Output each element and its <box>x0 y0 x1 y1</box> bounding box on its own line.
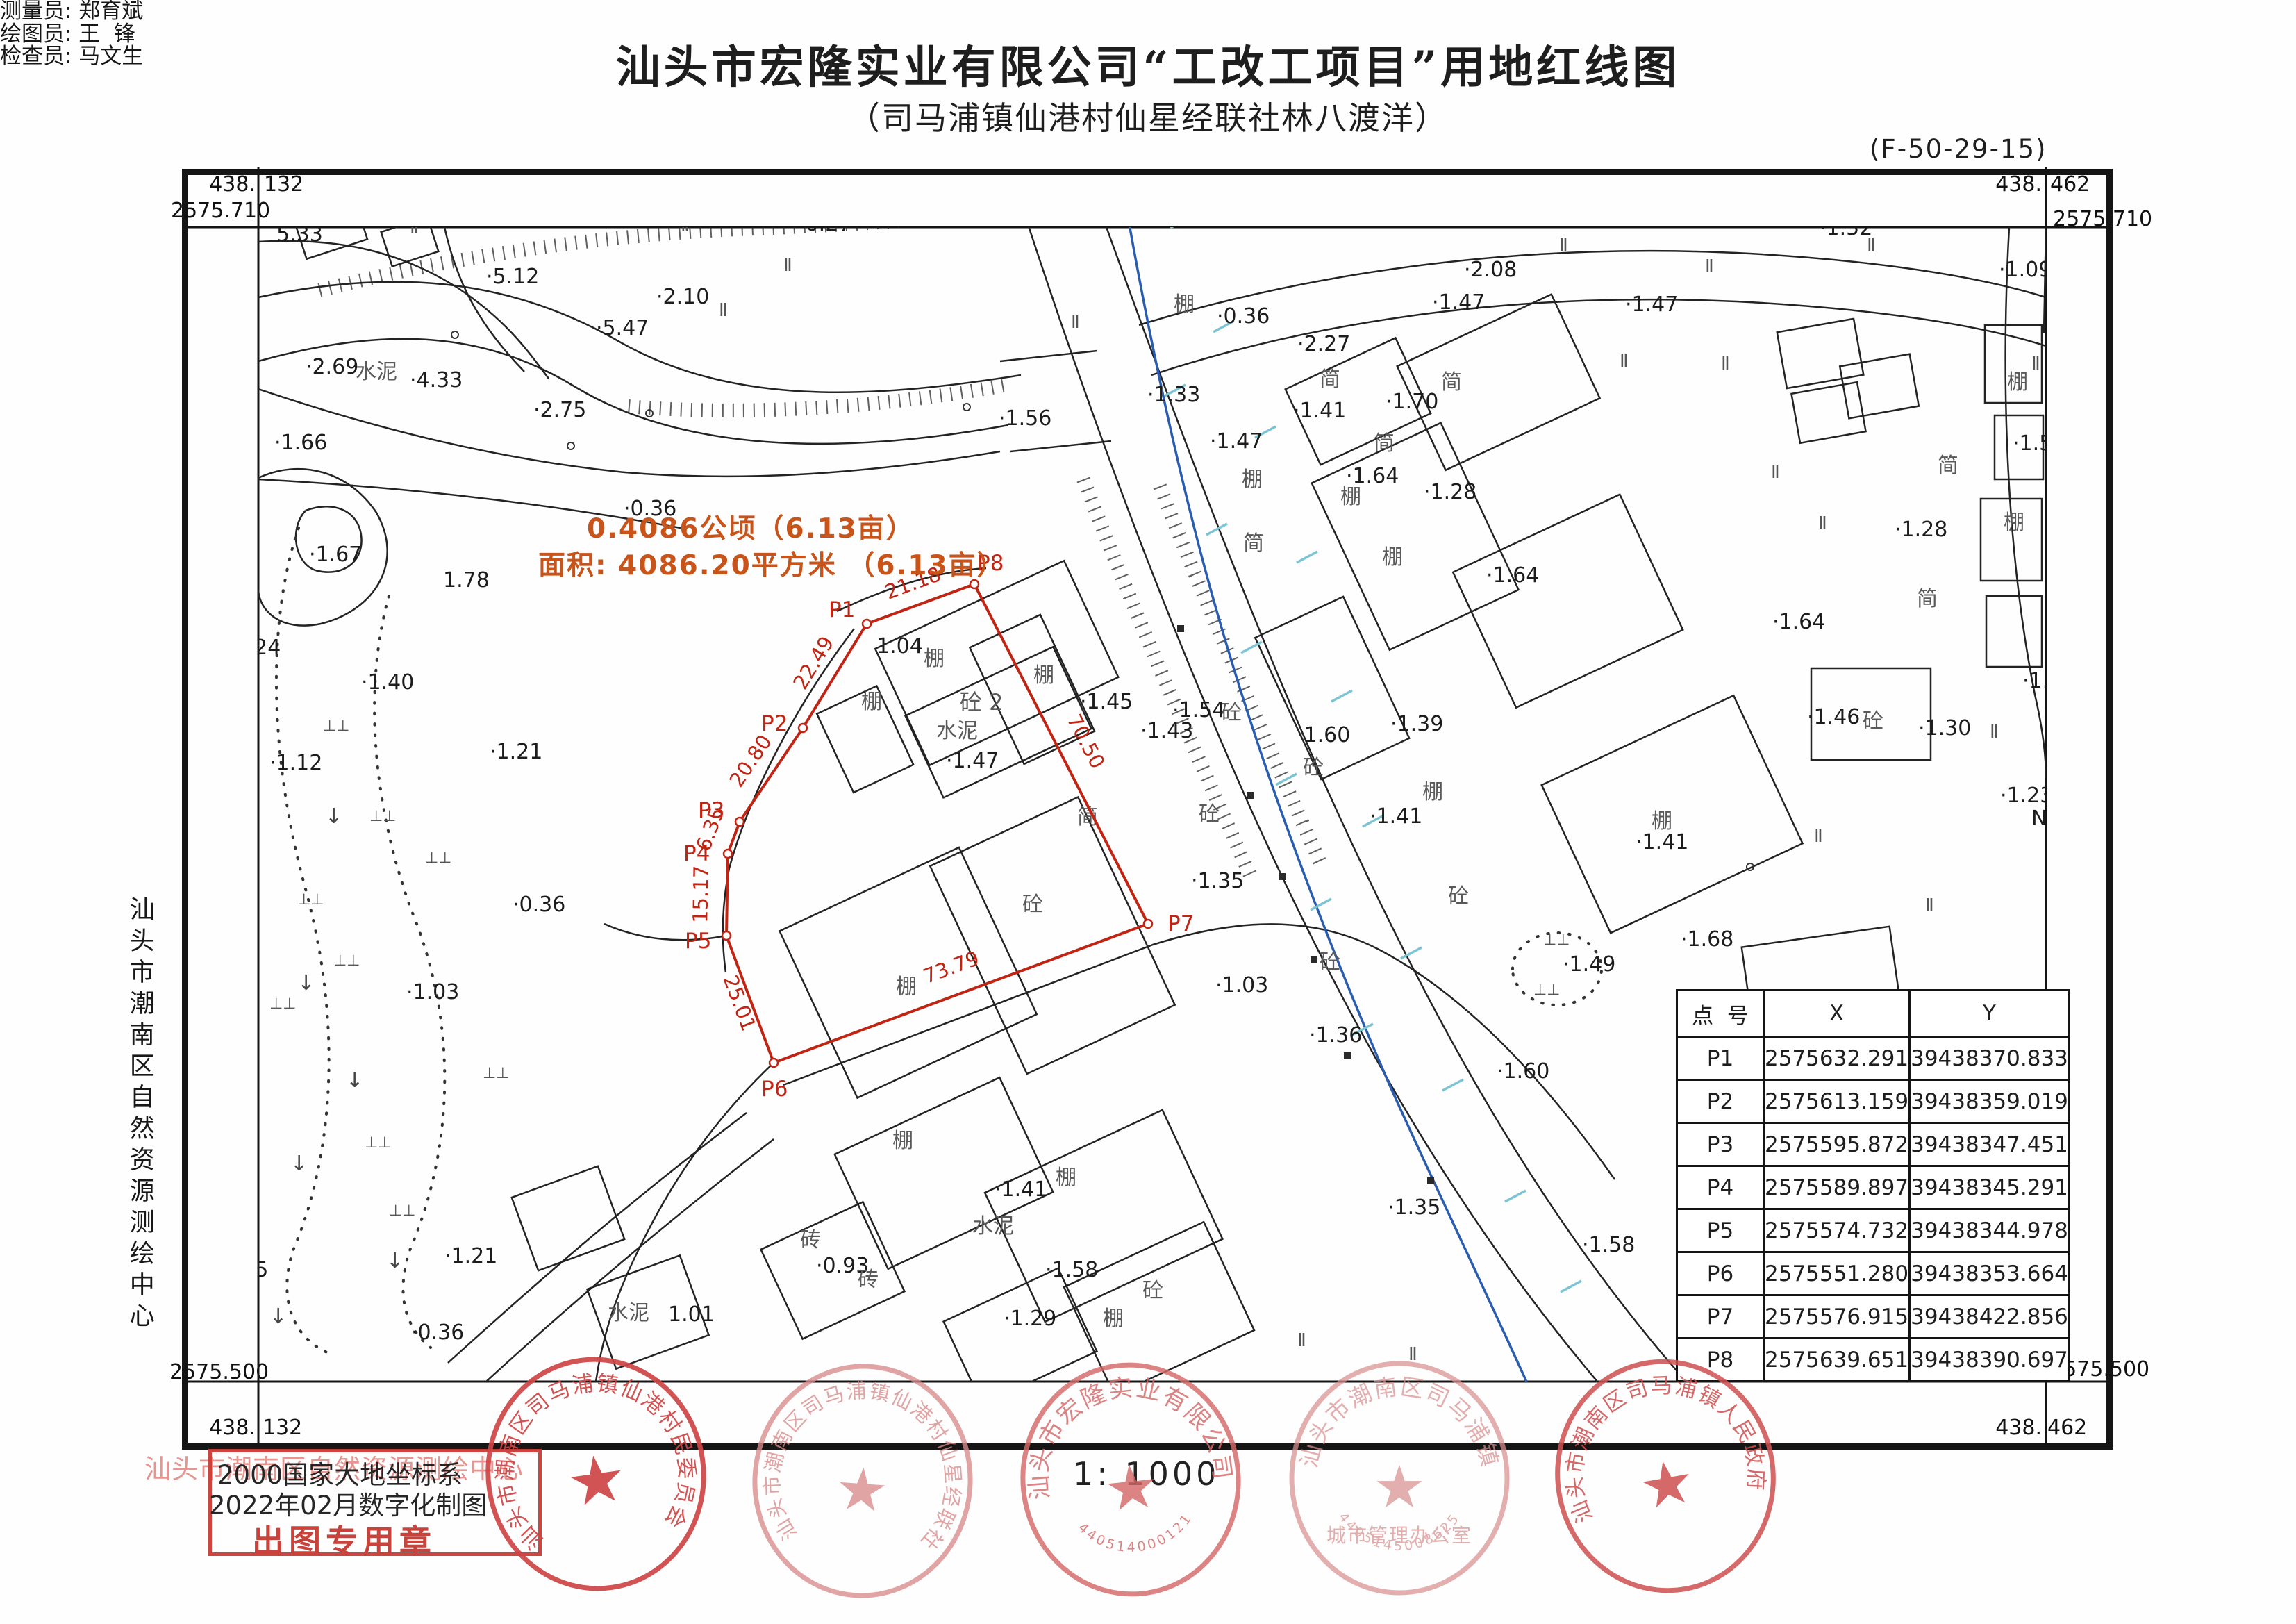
marsh-mark: ⊥⊥ <box>323 718 349 735</box>
flow-arrow: ↓ <box>290 1152 308 1176</box>
table-row: P72575576.91539438422.856 <box>1677 1295 2070 1339</box>
table-header: Y <box>1910 991 2070 1037</box>
marsh-mark: ⊥⊥ <box>425 850 451 867</box>
paddy-mark: Ⅱ <box>1705 256 1714 277</box>
table-cell: P6 <box>1677 1252 1764 1295</box>
map-label: ·1.09 <box>1999 258 2052 282</box>
flow-arrow: ↓ <box>386 1249 404 1273</box>
marsh-mark: ⊥⊥ <box>333 952 360 970</box>
official-stamp: 汕头市潮南区司马浦镇仙港村民委员会★ <box>457 1335 735 1616</box>
map-label: ·0.27 <box>799 212 851 236</box>
map-label: 1.78 <box>443 568 490 593</box>
stamp-star-icon: ★ <box>1101 1449 1163 1526</box>
map-label: ·1.16 <box>2022 669 2075 693</box>
water-dash <box>1331 690 1352 702</box>
map-label: 棚 <box>1174 292 1195 317</box>
water-dash <box>1442 1079 1463 1091</box>
table-row: P32575595.87239438347.451 <box>1677 1123 2070 1166</box>
map-label: 简 <box>1917 587 1938 611</box>
table-row: P52575574.73239438344.978 <box>1677 1209 2070 1252</box>
marsh-mark: ⊥⊥ <box>297 891 324 909</box>
parcel-vertex-label: P1 <box>829 597 855 622</box>
map-label: 棚 <box>2007 370 2028 395</box>
parcel-vertex-label: P4 <box>683 841 710 866</box>
water-dash <box>1297 552 1317 563</box>
area-label-line1: 0.4086公顷（6.13亩） <box>587 515 915 544</box>
parcel-edge-length: 25.01 <box>719 972 761 1034</box>
table-cell: 39438353.664 <box>1910 1252 2070 1295</box>
parcel-vertex-label: P7 <box>1167 911 1194 936</box>
map-label: 棚 <box>1056 1166 1076 1190</box>
water-dash <box>1561 1281 1581 1292</box>
map-label: 砼 <box>1448 884 1469 909</box>
marsh-mark: ⊥⊥ <box>365 1134 391 1152</box>
paddy-mark: Ⅱ <box>1559 235 1568 256</box>
marsh-mark: ⊥⊥ <box>1543 931 1570 949</box>
map-label: ·1.64 <box>1486 563 1539 588</box>
table-cell: 39438422.856 <box>1910 1295 2070 1339</box>
marsh-mark: ⊥⊥ <box>269 995 296 1013</box>
table-cell: P3 <box>1677 1123 1764 1166</box>
boundary-post <box>1177 625 1184 632</box>
map-label: 棚 <box>924 647 945 671</box>
table-cell: 39438359.019 <box>1910 1080 2070 1123</box>
map-label: 水泥 <box>356 360 397 384</box>
map-label: 棚 <box>1382 545 1403 570</box>
stamp-star-icon: ★ <box>563 1439 632 1523</box>
parcel-vertex <box>724 850 732 858</box>
map-label: ·1.58 <box>1045 1258 1098 1282</box>
paddy-mark: Ⅱ <box>1925 895 1934 916</box>
parcel-vertex <box>863 620 871 628</box>
map-label: ·1.58 <box>1582 1233 1635 1257</box>
parcel-polygon: 21.1822.4920.806.3515.1725.0173.7970.50P… <box>683 551 1194 1102</box>
table-cell: 2575595.872 <box>1764 1123 1910 1166</box>
parcel-vertex <box>1144 920 1152 928</box>
paddy-mark: Ⅱ <box>2031 354 2040 374</box>
map-label: ·1.36 <box>1309 1023 1362 1047</box>
map-label: 砼 <box>1142 1279 1163 1303</box>
map-label: 简 <box>1938 454 1958 478</box>
map-label: 砼 <box>1199 802 1220 827</box>
map-label: ·1.52 <box>2013 431 2065 456</box>
map-label: 水泥 <box>972 1214 1014 1238</box>
table-cell: P5 <box>1677 1209 1764 1252</box>
map-label: ·1.41 <box>1293 399 1346 423</box>
map-label: ·1.23 <box>2000 784 2053 808</box>
table-cell: P1 <box>1677 1037 1764 1080</box>
map-label: ·1.56 <box>999 406 1051 431</box>
stamp-star-icon: ★ <box>1373 1453 1426 1522</box>
map-sheet: 汕头市宏隆实业有限公司“工改工项目”用地红线图 （司马浦镇仙港村仙星经联社林八渡… <box>0 0 2296 1624</box>
table-cell: 2575576.915 <box>1764 1295 1910 1339</box>
table-cell: P4 <box>1677 1166 1764 1209</box>
map-label: 1.01 <box>668 1302 715 1327</box>
seal-purpose: 出图专用章 <box>252 1516 436 1562</box>
paddy-mark: Ⅱ <box>681 215 690 235</box>
map-label: ·1.45 <box>1080 690 1133 714</box>
map-label: 砼 <box>1863 709 1883 734</box>
map-label: 砼 <box>1022 893 1043 917</box>
map-label: ·1.60 <box>1497 1059 1549 1084</box>
map-label: 简 <box>1374 431 1395 456</box>
map-label: 砖 <box>800 1228 821 1252</box>
map-label: ·1.03 <box>1215 973 1268 997</box>
area-label-line2: 面积: 4086.20平方米 （6.13亩） <box>538 552 1006 581</box>
paddy-mark: Ⅱ <box>410 217 419 238</box>
map-label: ·1.43 <box>1140 719 1193 743</box>
map-label: ·1.12 <box>269 751 322 775</box>
map-label: ·1.29 <box>1004 1307 1056 1331</box>
map-label: 1.04 <box>876 634 923 658</box>
map-label: ·1.52 <box>1820 216 1872 240</box>
map-label: 水泥 <box>945 176 981 224</box>
table-cell: 2575632.291 <box>1764 1037 1910 1080</box>
table-cell: 2575574.732 <box>1764 1209 1910 1252</box>
map-label: ·1.28 <box>1895 517 1947 542</box>
paddy-mark: Ⅱ <box>1818 513 1827 534</box>
coordinate-table: 点 号XYP12575632.29139438370.833P22575613.… <box>1676 989 2070 1382</box>
map-label: 棚 <box>1652 809 1672 834</box>
map-label: 棚 <box>2004 511 2024 535</box>
marsh-mark: ⊥⊥ <box>369 808 396 825</box>
map-label: ·0.36 <box>513 893 565 917</box>
parcel-vertex-label: P5 <box>685 929 711 954</box>
paddy-mark: Ⅱ <box>1771 462 1780 483</box>
water-dash <box>1505 1191 1526 1202</box>
map-label: ·2.08 <box>1464 258 1517 282</box>
point-symbol <box>963 404 970 411</box>
map-label: ·1.64 <box>1772 610 1825 634</box>
paddy-mark: Ⅱ <box>361 192 370 213</box>
official-stamp: 汕头市宏隆实业有限公司★440514000121 <box>992 1341 1270 1621</box>
table-cell: 39438370.833 <box>1910 1037 2070 1080</box>
map-label: 砼 <box>1303 756 1324 780</box>
marsh-mark: ⊥⊥ <box>389 1202 415 1220</box>
paddy-mark: Ⅱ <box>719 300 728 321</box>
map-label: 5.33 <box>276 222 323 247</box>
table-cell: P7 <box>1677 1295 1764 1339</box>
map-label: 简 <box>1441 370 1462 395</box>
table-cell: 39438345.291 <box>1910 1166 2070 1209</box>
map-label: ·1.47 <box>1432 290 1485 315</box>
map-label: ·5.12 <box>486 265 539 289</box>
map-label: ·1.60 <box>1297 723 1350 747</box>
map-label: ·1.35 <box>1191 869 1244 893</box>
marsh-mark: ⊥⊥ <box>483 1065 509 1082</box>
boundary-post <box>1311 956 1317 963</box>
table-header: X <box>1764 991 1910 1037</box>
map-label: ·2.69 <box>306 355 358 379</box>
map-label: 棚 <box>1103 1307 1124 1331</box>
map-label: ·1.41 <box>995 1177 1047 1202</box>
map-label: ·1.39 <box>1390 712 1443 736</box>
map-label: 棚 <box>1340 485 1361 509</box>
table-cell: 2575613.159 <box>1764 1080 1910 1123</box>
parcel-edge-length: 20.80 <box>724 730 776 791</box>
flow-arrow: ↓ <box>346 1068 363 1093</box>
flow-arrow: ↓ <box>269 1304 287 1329</box>
parcel-edge-length: 73.79 <box>920 946 983 988</box>
map-label: ·1.47 <box>1210 429 1263 454</box>
map-label: ·2.75 <box>533 398 586 422</box>
parcel-vertex-label: P6 <box>761 1077 788 1102</box>
map-label: ·1.03 <box>406 980 459 1004</box>
map-label: 棚 <box>892 1129 913 1153</box>
map-label: ·2.27 <box>1297 332 1350 356</box>
marsh-mark: ⊥⊥ <box>1533 981 1560 999</box>
table-row: P62575551.28039438353.664 <box>1677 1252 2070 1295</box>
boundary-post <box>1279 873 1286 880</box>
official-stamp: 汕头市潮南区司马浦镇仙港村仙星经联社★ <box>724 1342 1001 1623</box>
map-label: ·1.24 <box>228 636 281 660</box>
map-label: ·2.10 <box>656 285 709 309</box>
parcel-vertex <box>735 818 744 826</box>
boundary-post <box>1247 792 1254 799</box>
map-label: 简 <box>1243 531 1264 556</box>
parcel-edge-length: 15.17 <box>688 865 713 924</box>
table-cell: P2 <box>1677 1080 1764 1123</box>
flow-arrow: ↓ <box>325 804 342 829</box>
map-label: 砼 <box>1221 701 1242 725</box>
map-label: 砖 <box>858 1268 879 1292</box>
paddy-mark: Ⅱ <box>1990 722 1999 743</box>
table-cell: 2575589.897 <box>1764 1166 1910 1209</box>
map-label: ·1.41 <box>1370 804 1422 829</box>
map-label: ·1.28 <box>1424 480 1476 504</box>
map-label: 棚 <box>896 975 917 999</box>
boundary-post <box>1344 1052 1351 1059</box>
map-label: ·5.47 <box>596 316 649 340</box>
table-cell: 39438390.697 <box>1910 1339 2070 1382</box>
map-label: ·1.46 <box>1807 705 1860 729</box>
map-label: 砼 2 <box>960 689 1004 715</box>
map-label: ·1.35 <box>1388 1195 1440 1220</box>
map-label: ·4.33 <box>410 368 463 392</box>
table-row: P12575632.29139438370.833 <box>1677 1037 2070 1080</box>
map-label: ·1.21 <box>490 740 542 764</box>
parcel-edge-length: 70.50 <box>1063 711 1110 772</box>
map-label: ·1.33 <box>1147 383 1200 407</box>
parcel-vertex <box>770 1059 778 1067</box>
table-row: P22575613.15939438359.019 <box>1677 1080 2070 1123</box>
table-cell: 39438344.978 <box>1910 1209 2070 1252</box>
paddy-mark: Ⅱ <box>783 255 792 276</box>
paddy-mark: Ⅱ <box>1071 312 1080 333</box>
stamp-star-icon: ★ <box>833 1454 891 1526</box>
map-label: ·0.36 <box>1217 304 1270 329</box>
map-label: ·1.67 <box>309 542 362 567</box>
official-stamp: 汕头市潮南区司马浦镇★城市管理办公室4405145008625 <box>1261 1339 1538 1620</box>
map-label: 棚 <box>1033 663 1054 688</box>
paddy-mark: Ⅱ <box>1620 351 1629 372</box>
table-header: 点 号 <box>1677 991 1764 1037</box>
official-stamp: 汕头市潮南区司马浦镇人民政府★ <box>1526 1337 1804 1618</box>
paddy-mark: Ⅱ <box>1721 354 1730 374</box>
map-label: ·1.40 <box>361 670 414 695</box>
map-label: 棚 <box>861 690 882 714</box>
paddy-mark: Ⅱ <box>524 192 533 213</box>
parcel-vertex <box>799 724 807 732</box>
point-symbol <box>451 331 458 338</box>
map-label: 棚 <box>1422 780 1443 804</box>
table-cell: 39438347.451 <box>1910 1123 2070 1166</box>
map-label: 棚 <box>1242 467 1263 492</box>
table-row: P42575589.89739438345.291 <box>1677 1166 2070 1209</box>
parcel-vertex <box>722 931 731 940</box>
parcel-vertex-label: P2 <box>761 711 788 736</box>
map-label: ·1.41 <box>1636 830 1688 854</box>
map-label: ·1.66 <box>274 431 327 455</box>
map-label: ·1.15 <box>215 1258 268 1282</box>
point-symbol <box>567 442 574 449</box>
map-label: ·0.36 <box>411 1320 464 1345</box>
map-label: ·1.70 <box>1386 390 1438 414</box>
boundary-post <box>1427 1177 1434 1184</box>
map-label: ·1.30 <box>1918 716 1971 740</box>
stamp-star-icon: ★ <box>1633 1444 1700 1524</box>
map-label: 水泥 <box>608 1301 649 1325</box>
map-label: ·1.21 <box>444 1244 497 1268</box>
paddy-mark: Ⅱ <box>1814 826 1823 847</box>
map-label: 砼 <box>1320 950 1340 975</box>
map-label: 水泥 <box>936 719 978 743</box>
map-label: ·1.47 <box>946 749 999 773</box>
map-label: ·1.49 <box>1563 952 1615 977</box>
flow-arrow: ↓ <box>297 971 315 995</box>
map-label: 简 <box>1320 367 1340 392</box>
map-label: ·1.68 <box>1681 927 1733 952</box>
map-label: ·1.47 <box>1625 292 1678 317</box>
map-label: N <box>2031 806 2047 831</box>
table-cell: 2575551.280 <box>1764 1252 1910 1295</box>
parcel-vertex-label: P3 <box>698 798 724 823</box>
point-symbol <box>1709 169 1716 176</box>
